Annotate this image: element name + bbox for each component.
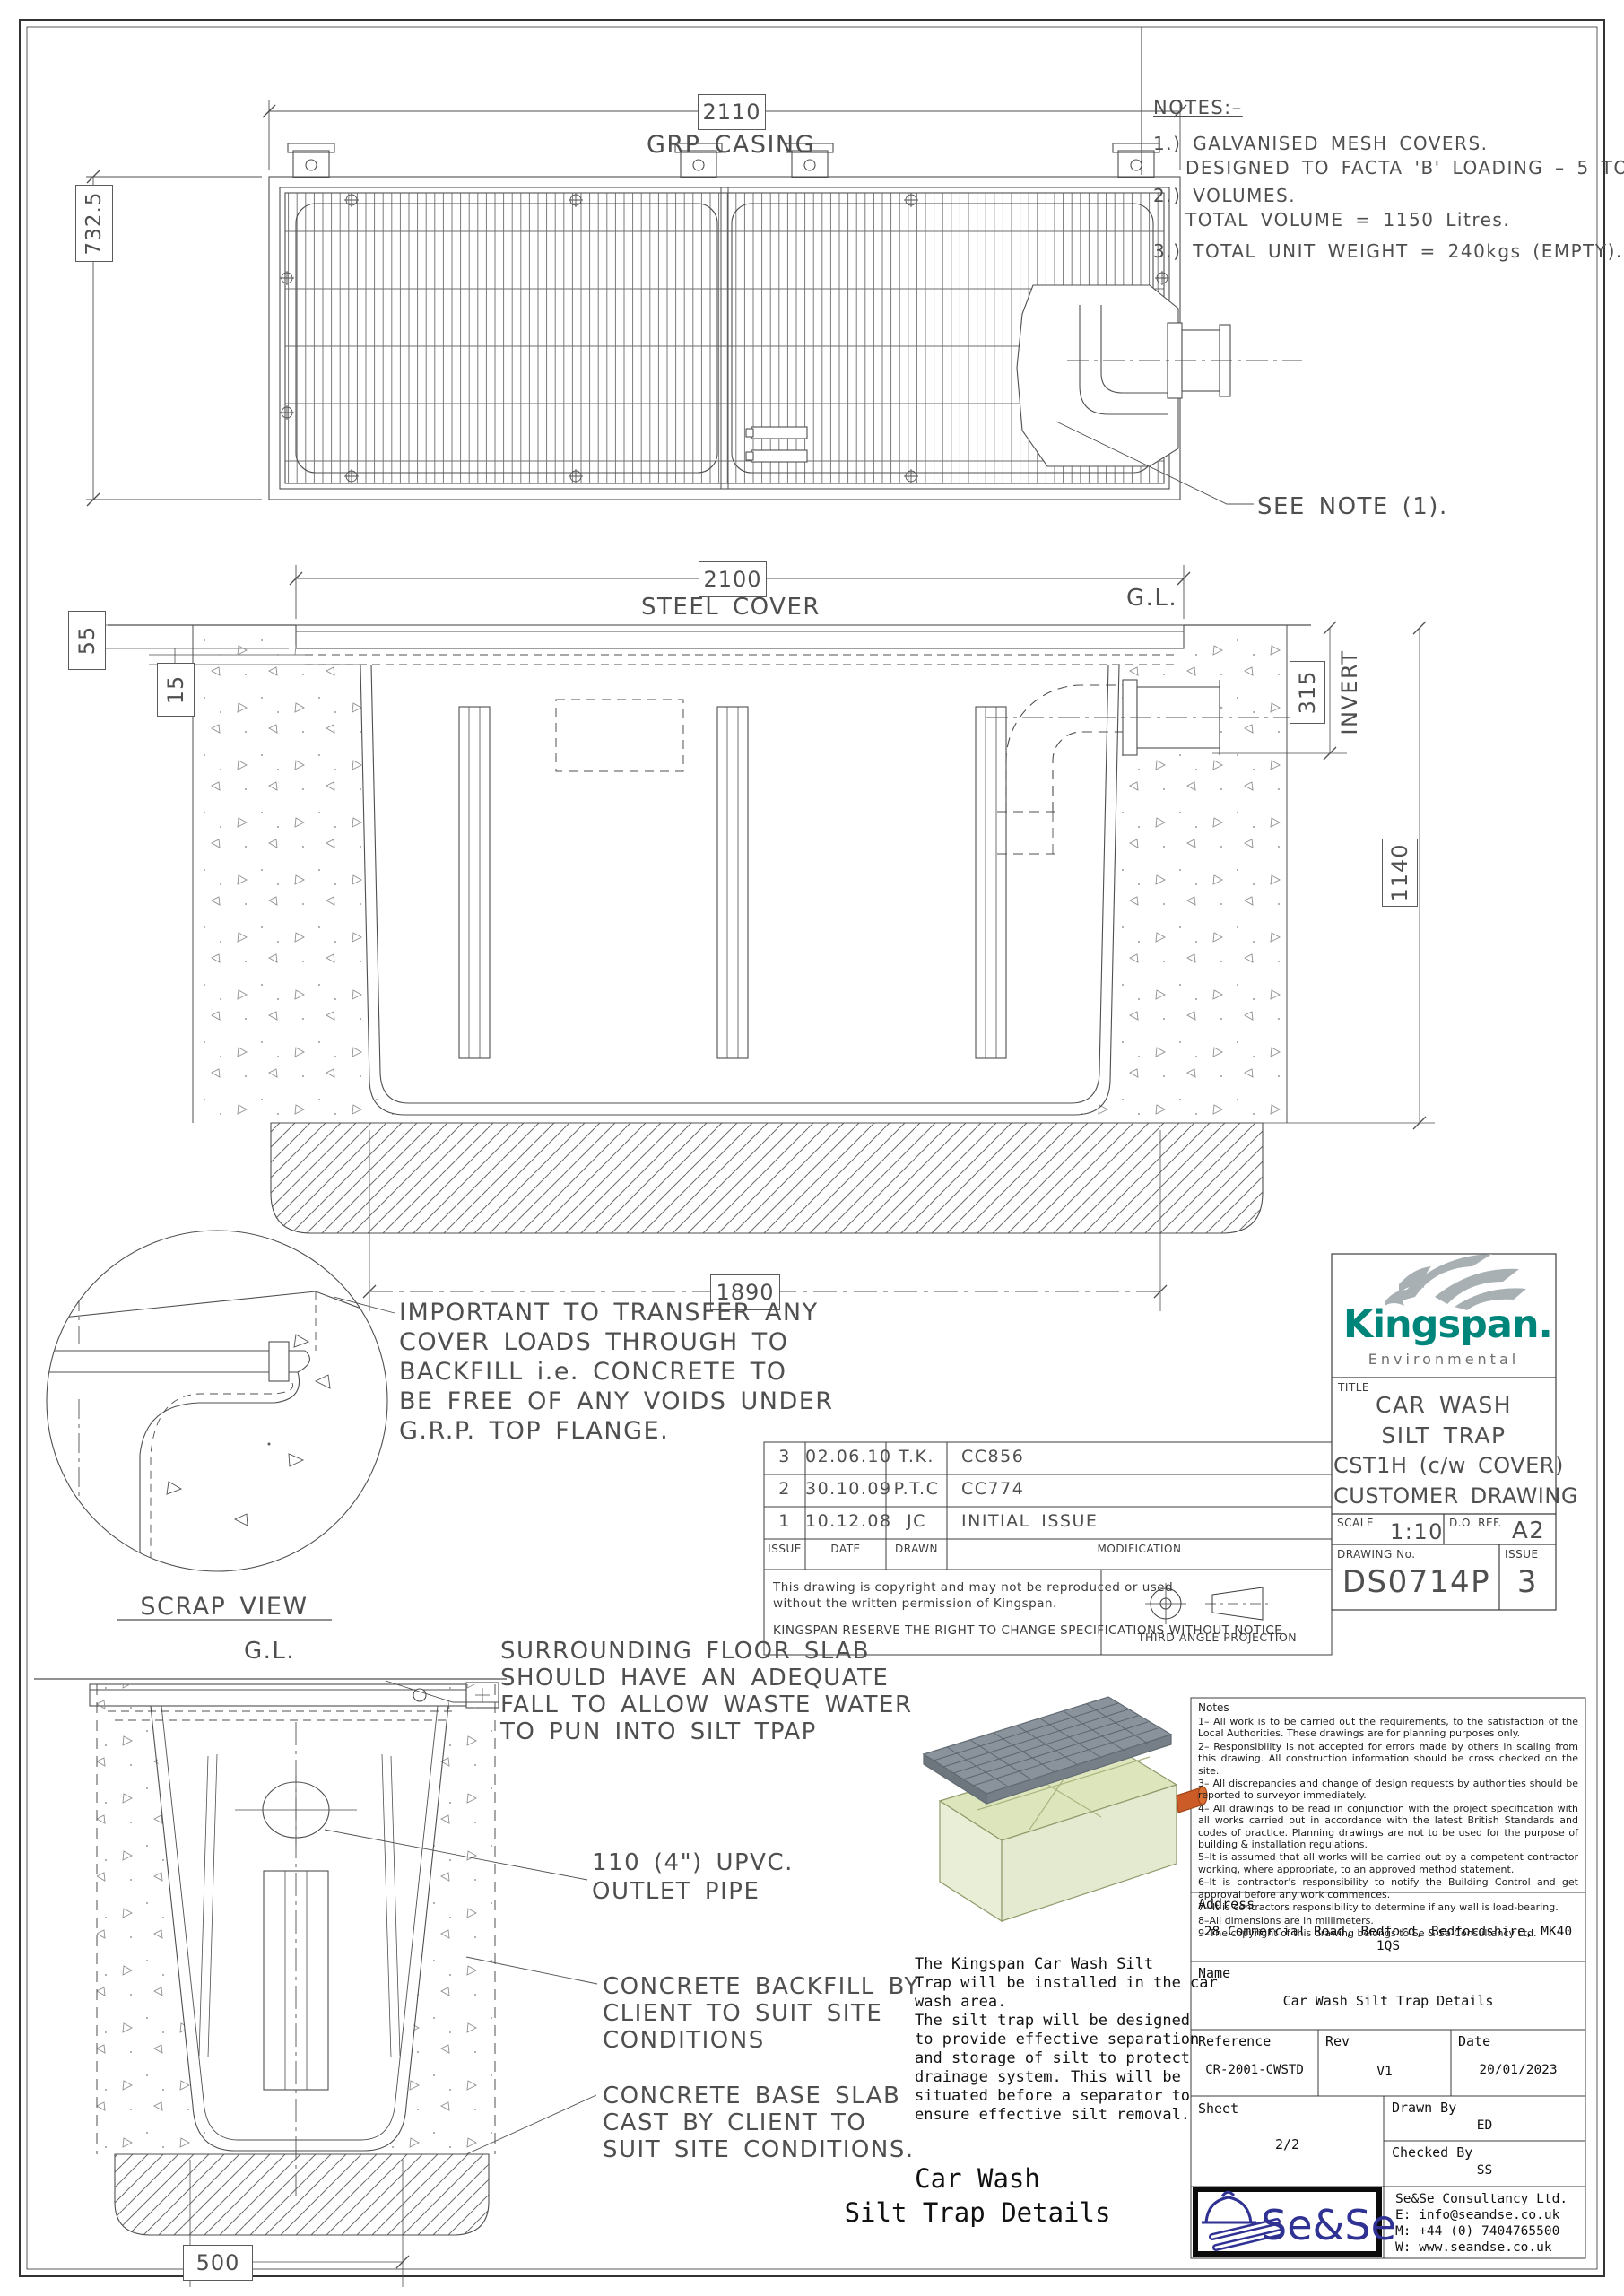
sese-note: 6–It is contractor's responsibility to n…	[1198, 1876, 1578, 1900]
rev-cell: T.K.	[886, 1447, 947, 1466]
scrap-note-line: BE FREE OF ANY VOIDS UNDER	[399, 1387, 834, 1415]
do-ref-label: D.O. REF.	[1449, 1517, 1502, 1529]
drawn-by-value: ED	[1384, 2118, 1585, 2133]
sese-note: 4– All drawings to be read in conjunctio…	[1198, 1803, 1578, 1851]
sese-note: 1– All work is to be carried out the req…	[1198, 1716, 1578, 1740]
floor-note-line: SHOULD HAVE AN ADEQUATE	[500, 1665, 889, 1692]
floor-note-line: FALL TO ALLOW WASTE WATER	[500, 1692, 913, 1718]
sese-note: 2– Responsibility is not accepted for er…	[1198, 1741, 1578, 1777]
scrap-note-line: BACKFILL i.e. CONCRETE TO	[399, 1358, 786, 1386]
title-line: CAR WASH	[1333, 1392, 1554, 1418]
plan-pipe-pocket	[1017, 285, 1302, 466]
rev-cell: 2	[764, 1479, 805, 1499]
description-line: wash area.	[915, 1993, 1006, 2011]
sese-note: 7– It is contractors responsibility to d…	[1198, 1901, 1578, 1913]
rev-cell: CC774	[961, 1479, 1024, 1499]
see-note-callout: SEE NOTE (1).	[1257, 493, 1448, 520]
backfill-note-line: CONCRETE BACKFILL BY	[603, 1973, 920, 2000]
do-ref-value: A2	[1512, 1518, 1545, 1544]
end-view-ground-level-label: G.L.	[244, 1638, 295, 1665]
steel-cover-label: STEEL COVER	[619, 594, 843, 621]
date-value: 20/01/2023	[1451, 2063, 1585, 2077]
flange-dimension: 15	[157, 663, 195, 717]
rev-cell: 10.12.08	[805, 1511, 886, 1531]
title-line: SILT TRAP	[1333, 1422, 1554, 1448]
backfill-note-line: CONDITIONS	[603, 2027, 765, 2054]
base-note-line: CAST BY CLIENT TO	[603, 2109, 866, 2136]
address-value: 28 Commercial Road, Bedford, Bedfordshir…	[1198, 1925, 1578, 1953]
section-width-dimension: 2100	[699, 561, 767, 597]
note-line: 2.) VOLUMES.	[1153, 185, 1296, 206]
scrap-note-line: COVER LOADS THROUGH TO	[399, 1328, 788, 1356]
note-line: 3.) TOTAL UNIT WEIGHT = 240kgs (EMPTY).	[1153, 240, 1623, 262]
sese-email: E: info@seandse.co.uk	[1395, 2208, 1559, 2222]
note-line: 1.) GALVANISED MESH COVERS.	[1153, 133, 1489, 154]
title-line: CST1H (c/w COVER)	[1333, 1453, 1554, 1478]
title-line: CUSTOMER DRAWING	[1333, 1483, 1554, 1509]
checked-by-label: Checked By	[1392, 2144, 1472, 2161]
section-view	[72, 565, 1435, 1311]
sese-note: 5–It is assumed that all works will be c…	[1198, 1851, 1578, 1875]
note-line: DESIGNED TO FACTA 'B' LOADING – 5 TONNE …	[1185, 157, 1624, 178]
description-line: The Kingspan Car Wash Silt	[915, 1955, 1153, 1973]
rev-cell: 1	[764, 1511, 805, 1531]
rev-cell: JC	[886, 1511, 947, 1531]
base-note-line: SUIT SITE CONDITIONS.	[603, 2136, 915, 2163]
projection-label: THIRD ANGLE PROJECTION	[1112, 1631, 1323, 1644]
rev-cell: 30.10.09	[805, 1479, 886, 1499]
reference-value: CR-2001-CWSTD	[1191, 2063, 1318, 2077]
plan-title: GRP CASING	[619, 131, 843, 159]
rev-cell: 3	[764, 1447, 805, 1466]
note-line: TOTAL VOLUME = 1150 Litres.	[1185, 209, 1510, 230]
rev-cell: INITIAL ISSUE	[961, 1511, 1098, 1531]
checked-by-value: SS	[1384, 2163, 1585, 2178]
description-line: to provide effective separation	[915, 2031, 1199, 2048]
cover-thickness-dimension: 55	[68, 611, 106, 670]
notes-heading: NOTES:–	[1153, 97, 1243, 118]
drawing-no-label: DRAWING No.	[1337, 1548, 1416, 1561]
scrap-view-label: SCRAP VIEW	[117, 1593, 332, 1621]
outlet-note-line: OUTLET PIPE	[592, 1878, 760, 1905]
sese-company: Se&Se Consultancy Ltd.	[1395, 2192, 1568, 2206]
sese-web: W: www.seandse.co.uk	[1395, 2240, 1552, 2255]
depth-dimension: 1140	[1382, 839, 1418, 907]
ground-level-label: G.L.	[1126, 585, 1177, 612]
backfill-note-line: CLIENT TO SUIT SITE	[603, 2000, 882, 2027]
issue-label: ISSUE	[1505, 1548, 1539, 1561]
floor-note-line: SURROUNDING FLOOR SLAB	[500, 1638, 870, 1665]
description-line: The silt trap will be designed	[915, 2012, 1190, 2030]
address-label: Address	[1198, 1896, 1255, 1912]
outlet-note-line: 110 (4") UPVC.	[592, 1849, 794, 1876]
product-illustration	[924, 1697, 1207, 1921]
description-line: drainage system. This will be	[915, 2068, 1181, 2086]
reference-label: Reference	[1198, 2033, 1271, 2049]
rev-cell: 02.06.10	[805, 1447, 886, 1466]
floor-note-line: TO PUN INTO SILT TPAP	[500, 1718, 817, 1745]
sese-note: 3– All discrepancies and change of desig…	[1198, 1778, 1578, 1802]
scrap-note-line: G.R.P. TOP FLANGE.	[399, 1417, 669, 1445]
caption-line: Silt Trap Details	[843, 2197, 1112, 2228]
name-value: Car Wash Silt Trap Details	[1198, 1993, 1578, 2009]
base-note-line: CONCRETE BASE SLAB	[603, 2083, 900, 2109]
rev-cell: CC856	[961, 1447, 1024, 1466]
scrap-note-line: IMPORTANT TO TRANSFER ANY	[399, 1299, 819, 1326]
copyright-line: without the written permission of Kingsp…	[773, 1596, 1057, 1611]
sese-notes-title: Notes	[1198, 1701, 1578, 1714]
name-label: Name	[1198, 1965, 1230, 1981]
drawn-by-label: Drawn By	[1392, 2100, 1456, 2116]
sheet-value: 2/2	[1191, 2136, 1384, 2152]
end-view-base-dimension: 500	[183, 2245, 253, 2281]
description-line: ensure effective silt removal.	[915, 2106, 1190, 2124]
plan-view	[86, 100, 1302, 506]
sese-logo-text: Se&Se	[1261, 2201, 1396, 2249]
sheet-label: Sheet	[1198, 2100, 1238, 2117]
end-view	[34, 1679, 597, 2287]
scrap-view	[47, 1231, 395, 1620]
rev-header: DATE	[805, 1543, 886, 1555]
rev-label: Rev	[1325, 2033, 1350, 2049]
description-line: and storage of silt to protect	[915, 2049, 1190, 2067]
rev-value: V1	[1318, 2065, 1451, 2079]
issue-value: 3	[1499, 1564, 1556, 1600]
description-line: situated before a separator to	[915, 2087, 1190, 2105]
rev-header: ISSUE	[764, 1543, 805, 1555]
date-label: Date	[1458, 2033, 1490, 2049]
sese-phone: M: +44 (0) 7404765500	[1395, 2224, 1559, 2239]
description-line: Trap will be installed in the car	[915, 1974, 1218, 1992]
invert-label: INVERT	[1337, 643, 1362, 742]
kingspan-logo-text: Kingspan.	[1343, 1302, 1544, 1347]
rev-header: DRAWN	[886, 1543, 947, 1555]
plan-width-dimension: 2110	[698, 94, 766, 130]
kingspan-division-text: Environmental	[1343, 1351, 1544, 1368]
copyright-line: This drawing is copyright and may not be…	[773, 1580, 1173, 1595]
drawing-no-value: DS0714P	[1333, 1564, 1499, 1600]
invert-dimension: 315	[1290, 661, 1325, 724]
caption-line: Car Wash	[843, 2163, 1112, 2194]
scale-label: SCALE	[1337, 1517, 1374, 1529]
scale-value: 1:10	[1390, 1519, 1444, 1544]
rev-header: MODIFICATION	[947, 1543, 1332, 1555]
plan-height-dimension: 732.5	[75, 185, 113, 262]
rev-cell: P.T.C	[886, 1479, 947, 1499]
